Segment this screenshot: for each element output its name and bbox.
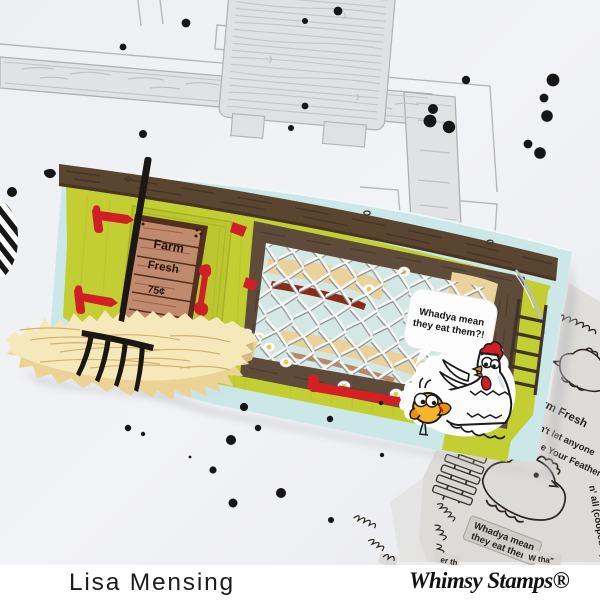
svg-text:Whimsy Stamps®: Whimsy Stamps® (409, 568, 570, 593)
svg-text:Lisa Mensing: Lisa Mensing (69, 569, 235, 596)
